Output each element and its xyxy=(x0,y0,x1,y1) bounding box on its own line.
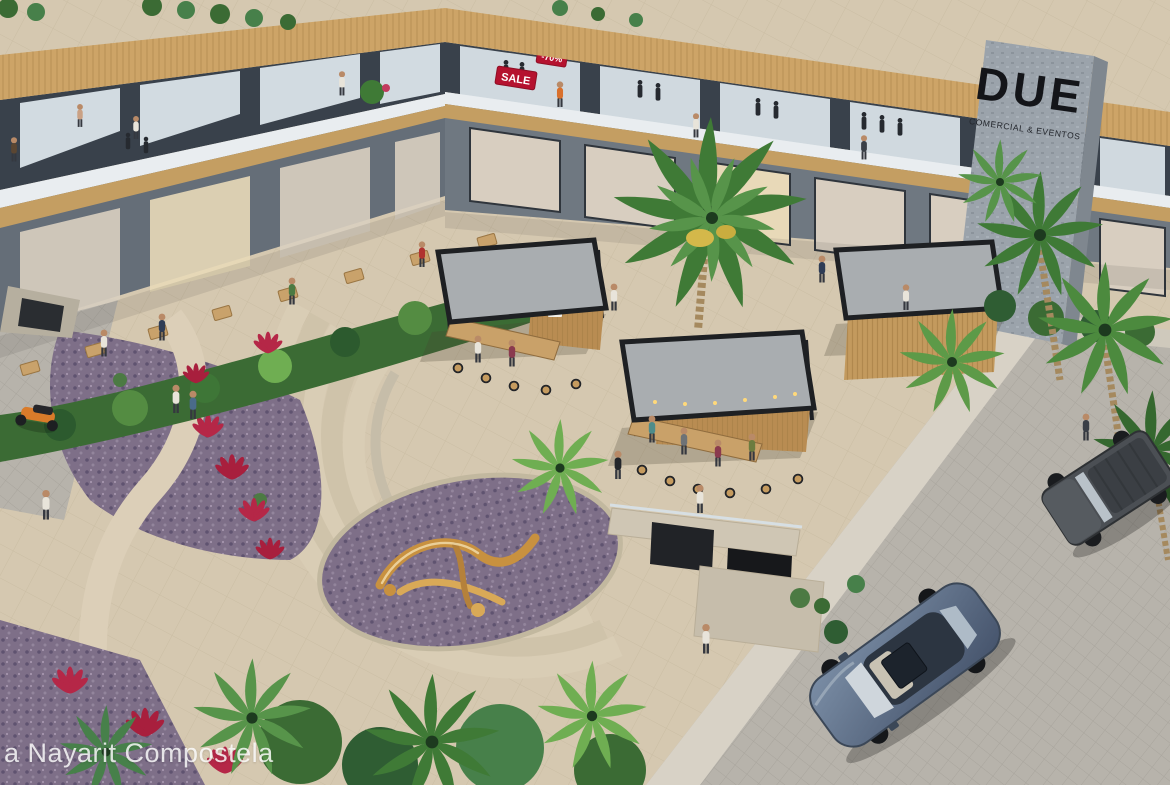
palm-flowers xyxy=(686,229,714,247)
rendering-canvas: SALE -70% DUE COMERCIAL & EVENTOS xyxy=(0,0,1170,785)
stool xyxy=(762,485,771,494)
shop-plant-display xyxy=(360,80,384,104)
stool xyxy=(572,380,581,389)
stool xyxy=(666,477,675,486)
kiosk-roof xyxy=(438,240,606,322)
stool xyxy=(542,386,551,395)
shop-flower-display xyxy=(382,84,390,92)
kiosk-roof xyxy=(836,242,1002,318)
stool xyxy=(510,382,519,391)
scene-svg: SALE -70% DUE COMERCIAL & EVENTOS xyxy=(0,0,1170,785)
kiosk-roof xyxy=(622,332,814,420)
stool xyxy=(794,475,803,484)
stool xyxy=(454,364,463,373)
stool xyxy=(482,374,491,383)
stool xyxy=(638,466,647,475)
palm-flowers xyxy=(716,225,736,239)
stool xyxy=(726,489,735,498)
